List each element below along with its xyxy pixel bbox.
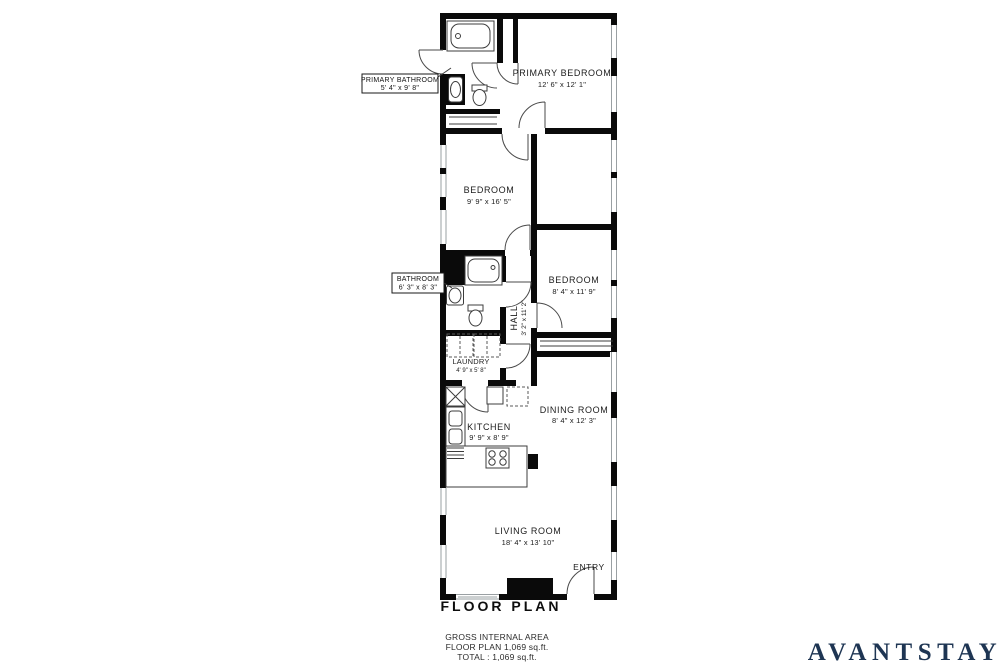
- living-room-label: LIVING ROOM: [495, 526, 562, 536]
- bedroom2-closet: [540, 341, 613, 346]
- gross-internal-area-line: GROSS INTERNAL AREA: [445, 632, 549, 642]
- kitchen-label: KITCHEN: [467, 422, 511, 432]
- total-area-line: TOTAL : 1,069 sq.ft.: [457, 652, 536, 662]
- hall-dims: 3' 2" x 11' 2": [521, 300, 528, 336]
- entry-label: ENTRY: [573, 562, 605, 572]
- hall-door-arc: [506, 344, 530, 368]
- laundry-door-arc: [462, 386, 488, 412]
- bedroom1-dims: 9' 9" x 16' 5": [467, 197, 511, 206]
- primary-bathroom-callout: PRIMARY BATHROOM 5' 4" x 9' 8": [361, 68, 451, 93]
- primary-bathroom-dims: 5' 4" x 9' 8": [381, 85, 420, 92]
- bedroom1-hall-door-arc: [505, 225, 530, 250]
- kitchen-dims: 9' 9" x 8' 9": [469, 433, 509, 442]
- bedroom2-label: BEDROOM: [549, 275, 600, 285]
- living-room-dims: 18' 4" x 13' 10": [502, 538, 555, 547]
- primary-bedroom-dims: 12' 6" x 12' 1": [538, 80, 586, 89]
- area-summary: GROSS INTERNAL AREA FLOOR PLAN 1,069 sq.…: [445, 632, 549, 662]
- bedroom2-door-arc: [537, 303, 562, 328]
- floor-plan-page: PRIMARY BEDROOM 12' 6" x 12' 1" BEDROOM …: [0, 0, 1000, 667]
- dishwasher-icon: [507, 387, 528, 406]
- bedroom2-dims: 8' 4" x 11' 9": [552, 287, 596, 296]
- fridge-icon: [487, 387, 503, 404]
- laundry-dims: 4' 9" x 5' 8": [456, 368, 486, 374]
- laundry-label: LAUNDRY: [452, 357, 489, 366]
- dining-room-label: DINING ROOM: [540, 405, 609, 415]
- primary-bathroom-label: PRIMARY BATHROOM: [361, 77, 439, 84]
- stove-icon: [486, 448, 509, 468]
- floor-plan-title: FLOOR PLAN: [441, 598, 562, 614]
- bedroom1-door-arc: [502, 134, 528, 160]
- fireplace: [507, 578, 553, 594]
- primary-bedroom-label: PRIMARY BEDROOM: [513, 68, 612, 78]
- bedroom1-label: BEDROOM: [464, 185, 515, 195]
- exterior-walls: [440, 13, 617, 600]
- floor-plan-area-line: FLOOR PLAN 1,069 sq.ft.: [446, 642, 549, 652]
- avantstay-logo: AVANTSTAY: [808, 639, 1000, 666]
- hall-label: HALL: [509, 306, 519, 331]
- exterior-door-arc: [419, 50, 443, 74]
- bathroom-fixtures: [446, 256, 502, 326]
- linen-closet: [449, 117, 497, 124]
- laundry-appliances: [447, 334, 500, 357]
- primary-bath-door-arc: [472, 63, 497, 88]
- dining-room-dims: 8' 4" x 12' 3": [552, 416, 596, 425]
- bathroom-label: BATHROOM: [397, 276, 439, 283]
- floor-plan-svg: PRIMARY BEDROOM 12' 6" x 12' 1" BEDROOM …: [0, 0, 1000, 667]
- primary-bedroom-door-arc: [519, 102, 545, 128]
- bathroom-callout: BATHROOM 6' 3" x 8' 3": [392, 273, 452, 293]
- bathroom-dims: 6' 3" x 8' 3": [399, 285, 438, 292]
